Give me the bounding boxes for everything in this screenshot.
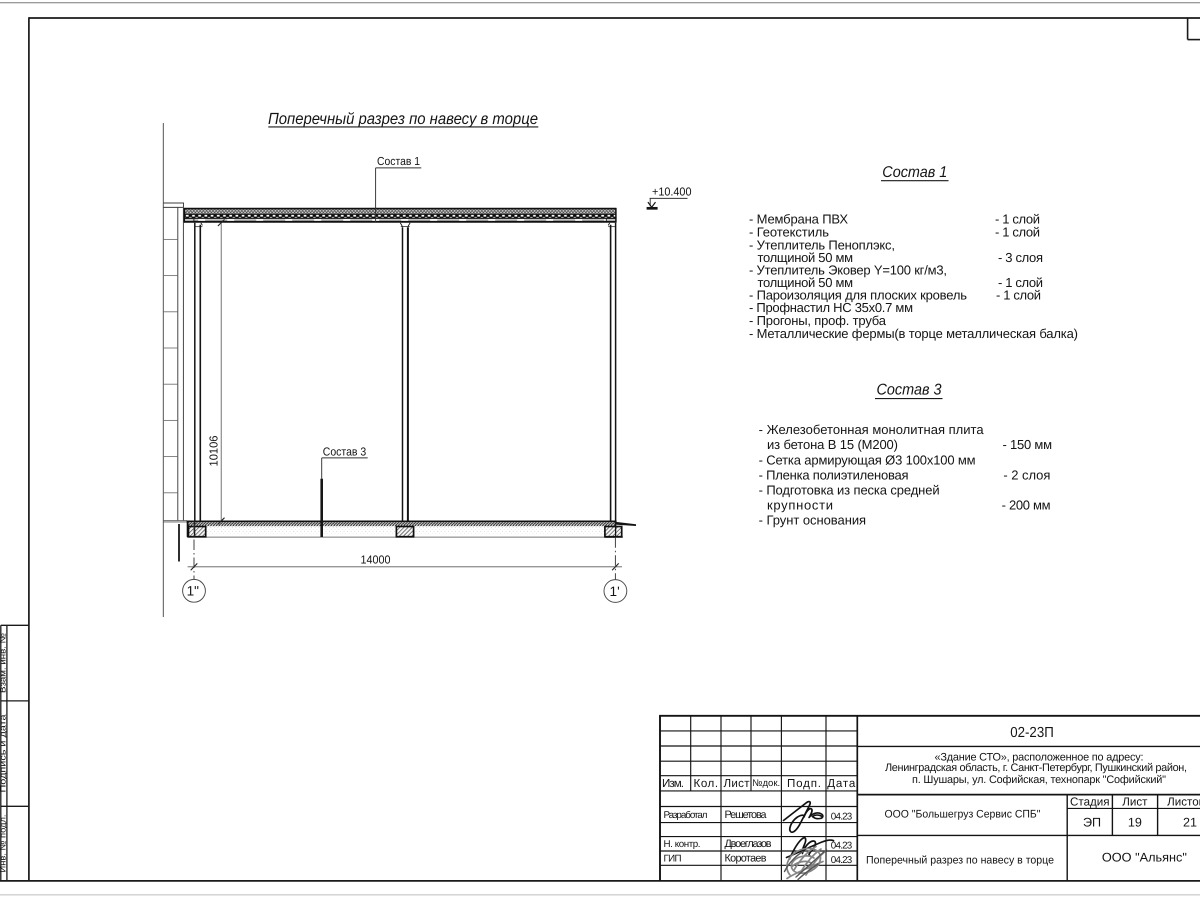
svg-text:- 1 слой: - 1 слой <box>995 225 1040 240</box>
svg-text:Листов: Листов <box>1167 796 1200 809</box>
svg-text:ЭП: ЭП <box>1083 815 1101 829</box>
svg-text:Разработал: Разработал <box>664 810 708 821</box>
svg-text:Состав 1: Состав 1 <box>377 155 420 168</box>
svg-text:- Железобетонная монолитная п: - Железобетонная монолитная плита <box>759 422 985 437</box>
svg-text:Решетова: Решетова <box>725 809 767 821</box>
svg-text:Поперечный разрез по навесу в: Поперечный разрез по навесу в торце <box>866 854 1054 866</box>
svg-text:- Металлические фермы(в торце: - Металлические фермы(в торце металличес… <box>749 326 1078 341</box>
svg-text:№док.: №док. <box>752 778 780 789</box>
svg-text:- 3 слоя: - 3 слоя <box>998 250 1043 265</box>
svg-text:04.23: 04.23 <box>831 855 853 866</box>
svg-text:10106: 10106 <box>207 436 220 467</box>
svg-text:Состав 1: Состав 1 <box>882 164 947 181</box>
svg-text:Дата: Дата <box>827 777 856 790</box>
svg-text:14000: 14000 <box>361 554 391 567</box>
svg-text:крупности: крупности <box>767 497 833 512</box>
svg-text:ООО "Большегруз Сервис СПБ": ООО "Большегруз Сервис СПБ" <box>885 808 1041 820</box>
svg-text:- Грунт основания: - Грунт основания <box>759 512 867 527</box>
svg-text:- 2 слоя: - 2 слоя <box>1003 467 1050 482</box>
svg-text:Лист: Лист <box>1122 796 1148 809</box>
svg-text:04.23: 04.23 <box>831 811 853 822</box>
svg-text:- Подготовка из песка средней: - Подготовка из песка средней <box>759 482 940 497</box>
svg-text:Кол.: Кол. <box>694 777 719 790</box>
svg-text:02-23П: 02-23П <box>1010 725 1054 741</box>
svg-text:Подп.: Подп. <box>787 777 821 790</box>
svg-text:Н. контр.: Н. контр. <box>664 839 701 850</box>
svg-text:Лист: Лист <box>724 777 751 790</box>
svg-text:- 150 мм: - 150 мм <box>1003 437 1053 452</box>
svg-text:+10.400: +10.400 <box>652 186 692 199</box>
svg-text:Коротаев: Коротаев <box>725 853 767 865</box>
svg-text:Стадия: Стадия <box>1070 796 1110 809</box>
svg-text:Ленинградская область, г. Санк: Ленинградская область, г. Санкт-Петербур… <box>885 762 1187 774</box>
svg-text:04.23: 04.23 <box>831 841 853 852</box>
svg-text:п. Шушары, ул. Софийская, техн: п. Шушары, ул. Софийская, технопарк "Соф… <box>912 774 1166 786</box>
svg-text:ООО "Альянс": ООО "Альянс" <box>1102 851 1187 865</box>
svg-text:Изм.: Изм. <box>662 777 684 790</box>
svg-text:Двоеглазов: Двоеглазов <box>725 838 772 850</box>
svg-text:Инв. № подл.: Инв. № подл. <box>0 815 7 873</box>
svg-text:1': 1' <box>610 584 620 599</box>
svg-text:19: 19 <box>1128 815 1142 829</box>
svg-text:Состав 3: Состав 3 <box>877 382 942 399</box>
svg-text:- Сетка армирующая Ø3 100х100: - Сетка армирующая Ø3 100х100 мм <box>759 452 976 467</box>
svg-text:Подпись и дата: Подпись и дата <box>0 714 7 793</box>
svg-text:ГИП: ГИП <box>664 853 682 864</box>
svg-text:- 200 мм: - 200 мм <box>1002 497 1051 512</box>
svg-text:- 1 слой: - 1 слой <box>996 288 1041 303</box>
svg-text:21: 21 <box>1183 815 1197 829</box>
svg-text:Поперечный разрез по навесу в: Поперечный разрез по навесу в торце <box>268 110 538 128</box>
svg-text:1": 1" <box>187 584 200 599</box>
svg-text:Состав 3: Состав 3 <box>323 445 367 458</box>
svg-text:- Пленка полиэтиленовая: - Пленка полиэтиленовая <box>759 467 909 482</box>
svg-text:из бетона В 15 (М200): из бетона В 15 (М200) <box>767 437 898 452</box>
svg-text:Взам. инв. №: Взам. инв. № <box>0 633 7 693</box>
